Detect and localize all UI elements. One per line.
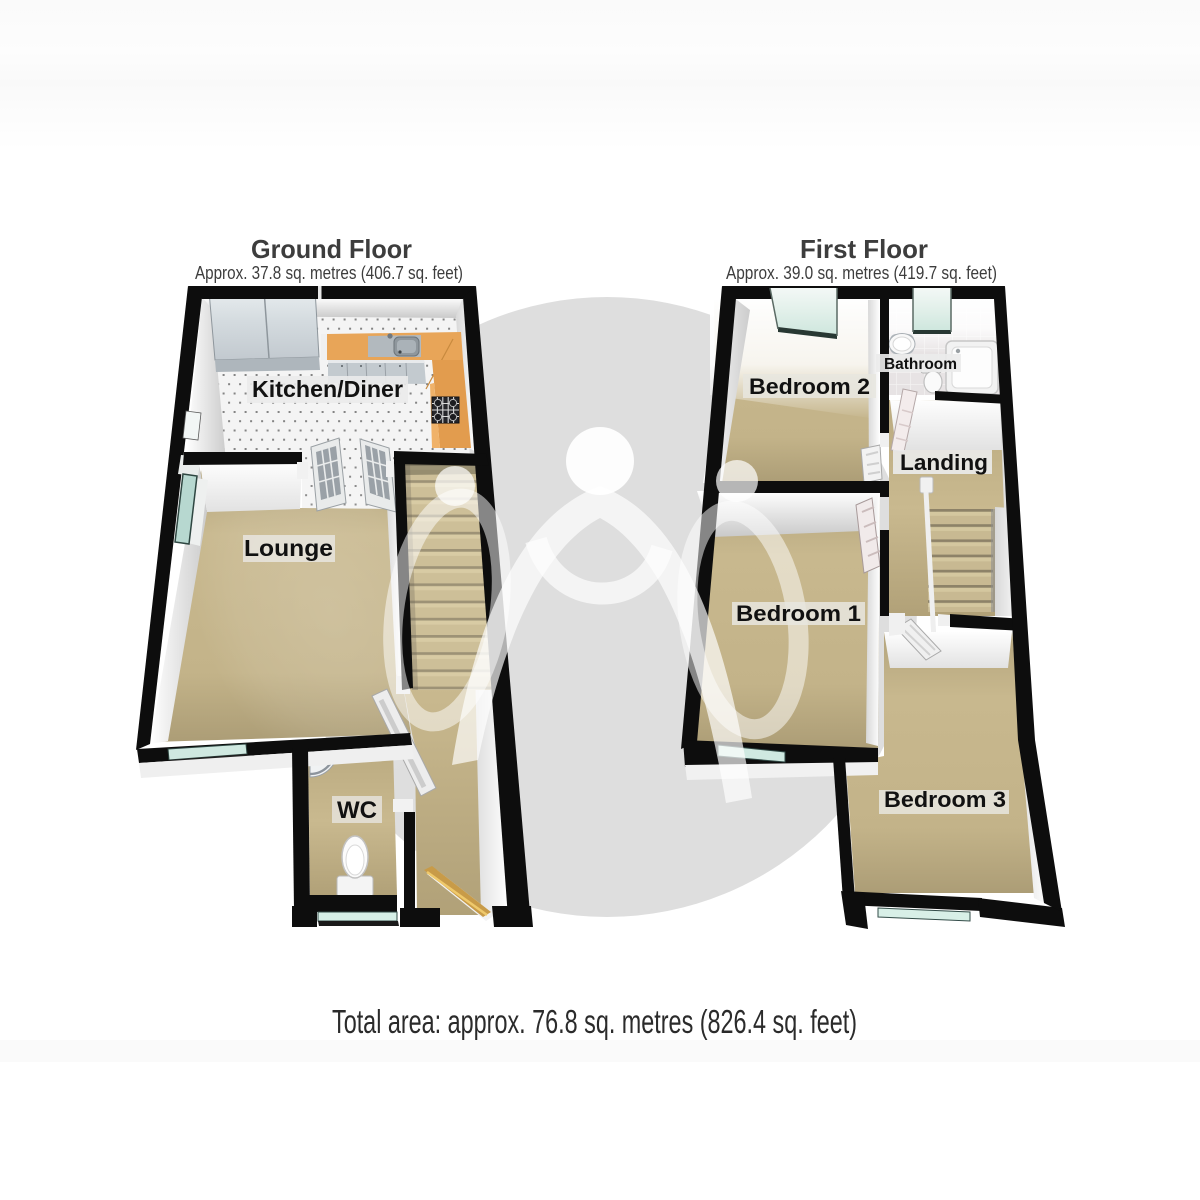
svg-text:Ground Floor: Ground Floor	[251, 234, 412, 264]
svg-text:WC: WC	[337, 797, 377, 824]
svg-text:Lounge: Lounge	[244, 535, 333, 561]
svg-text:Approx. 37.8 sq. metres (406.7: Approx. 37.8 sq. metres (406.7 sq. feet)	[195, 263, 463, 283]
svg-text:Landing: Landing	[900, 450, 988, 475]
svg-text:Bedroom 2: Bedroom 2	[749, 374, 870, 399]
svg-text:Total area: approx. 76.8 sq. m: Total area: approx. 76.8 sq. metres (826…	[332, 1003, 857, 1040]
svg-text:Approx. 39.0 sq. metres (419.7: Approx. 39.0 sq. metres (419.7 sq. feet)	[726, 263, 997, 283]
svg-text:First Floor: First Floor	[800, 234, 928, 264]
svg-text:Bedroom 3: Bedroom 3	[884, 787, 1006, 812]
svg-text:Bedroom 1: Bedroom 1	[736, 601, 861, 626]
svg-text:Bathroom: Bathroom	[884, 356, 957, 373]
svg-text:Kitchen/Diner: Kitchen/Diner	[252, 376, 403, 402]
